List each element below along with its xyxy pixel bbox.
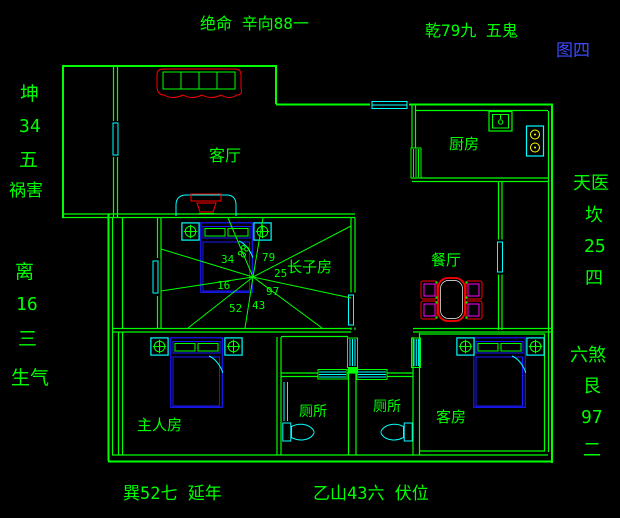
room-label-toilet-left: 厕所 <box>299 404 327 420</box>
annotation-97: 97 <box>581 407 603 428</box>
vent-kitchen-left <box>411 148 421 178</box>
nightstand <box>225 338 242 355</box>
tv-cabinet <box>176 194 236 216</box>
compass-number: 88 <box>235 242 253 260</box>
dining-chair <box>421 281 438 299</box>
annotation-li: 离 <box>15 261 34 283</box>
annotation-wu: 五 <box>19 149 38 171</box>
room-label-master: 主人房 <box>137 416 182 434</box>
room-label-living: 客厅 <box>209 146 241 165</box>
toilet-fixture-right <box>381 423 412 441</box>
annotation-kan: 坎 <box>585 205 603 226</box>
nightstand <box>457 338 474 355</box>
compass-number: 52 <box>229 302 242 315</box>
annotation-bottom-left: 巽52七 延年 <box>123 484 222 504</box>
compass-number: 16 <box>217 279 230 292</box>
nightstand <box>151 338 168 355</box>
compass-number: 34 <box>221 253 235 266</box>
sofa <box>157 69 242 98</box>
annotation-san: 三 <box>18 328 37 350</box>
annotation-25: 25 <box>584 236 606 257</box>
kitchen-sink <box>489 112 512 132</box>
annotation-shengqi: 生气 <box>11 367 49 389</box>
annotation-er: 二 <box>583 440 601 461</box>
bed-guest <box>474 338 526 408</box>
annotation-kun: 坤 <box>20 83 39 105</box>
annotation-top-right: 乾79九 五鬼 <box>425 21 518 40</box>
dining-table <box>438 278 465 321</box>
compass-number: 97 <box>266 285 279 298</box>
annotation-top-left: 绝命 辛向88一 <box>200 14 309 33</box>
compass-number: 25 <box>274 267 287 280</box>
annotation-16: 16 <box>16 294 38 315</box>
nightstand <box>182 223 199 240</box>
figure-label: 图四 <box>556 41 590 61</box>
room-label-toilet-right: 厕所 <box>373 399 401 415</box>
vent-toilet-left <box>318 370 347 380</box>
room-label-eldest-son: 长子房 <box>287 258 332 276</box>
floor-plan-svg: 88 79 25 97 43 52 16 34 客厅 厨房 长子房 餐厅 主人房… <box>0 0 620 518</box>
annotation-liusha: 六煞 <box>570 345 606 366</box>
annotation-huohai: 祸害 <box>9 181 43 201</box>
room-label-kitchen: 厨房 <box>449 135 479 153</box>
door-toilet-left <box>284 382 288 421</box>
room-label-dining: 餐厅 <box>431 251 461 269</box>
vent-toilet-right <box>357 370 387 380</box>
annotation-tianyi: 天医 <box>573 173 609 194</box>
room-label-guest: 客房 <box>436 408 466 426</box>
compass-number: 79 <box>262 251 275 264</box>
annotation-bottom-right: 乙山43六 伏位 <box>313 484 429 504</box>
cad-floor-plan-viewport: 88 79 25 97 43 52 16 34 客厅 厨房 长子房 餐厅 主人房… <box>0 0 620 518</box>
annotation-gen: 艮 <box>583 376 601 397</box>
toilet-fixture-left <box>283 423 314 441</box>
annotation-si: 四 <box>585 268 603 289</box>
annotation-34: 34 <box>19 116 41 137</box>
stove <box>527 126 544 156</box>
dining-chair <box>466 281 483 299</box>
nightstand <box>254 223 271 240</box>
dining-set <box>421 278 482 321</box>
compass-number: 43 <box>252 299 265 312</box>
dining-chair <box>421 301 438 319</box>
dining-chair <box>466 301 483 319</box>
bed-master <box>171 338 223 408</box>
nightstand <box>527 338 544 355</box>
vent-hall-left <box>348 338 358 368</box>
